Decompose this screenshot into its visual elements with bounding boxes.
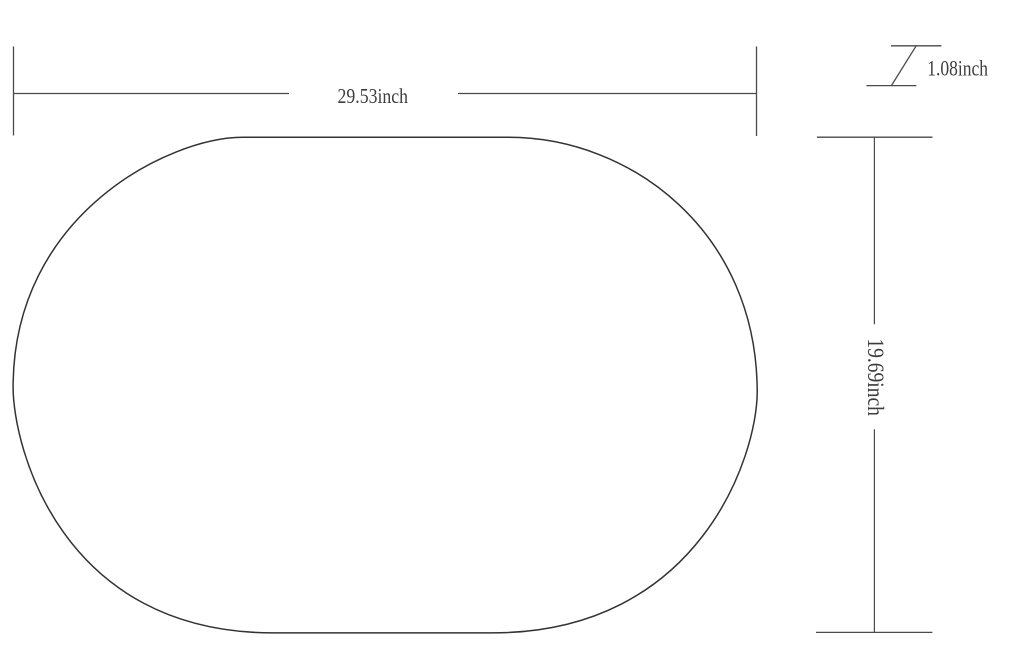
svg-text:29.53inch: 29.53inch [338, 84, 409, 108]
svg-text:19.69inch: 19.69inch [863, 338, 888, 416]
svg-text:1.08inch: 1.08inch [927, 56, 988, 81]
